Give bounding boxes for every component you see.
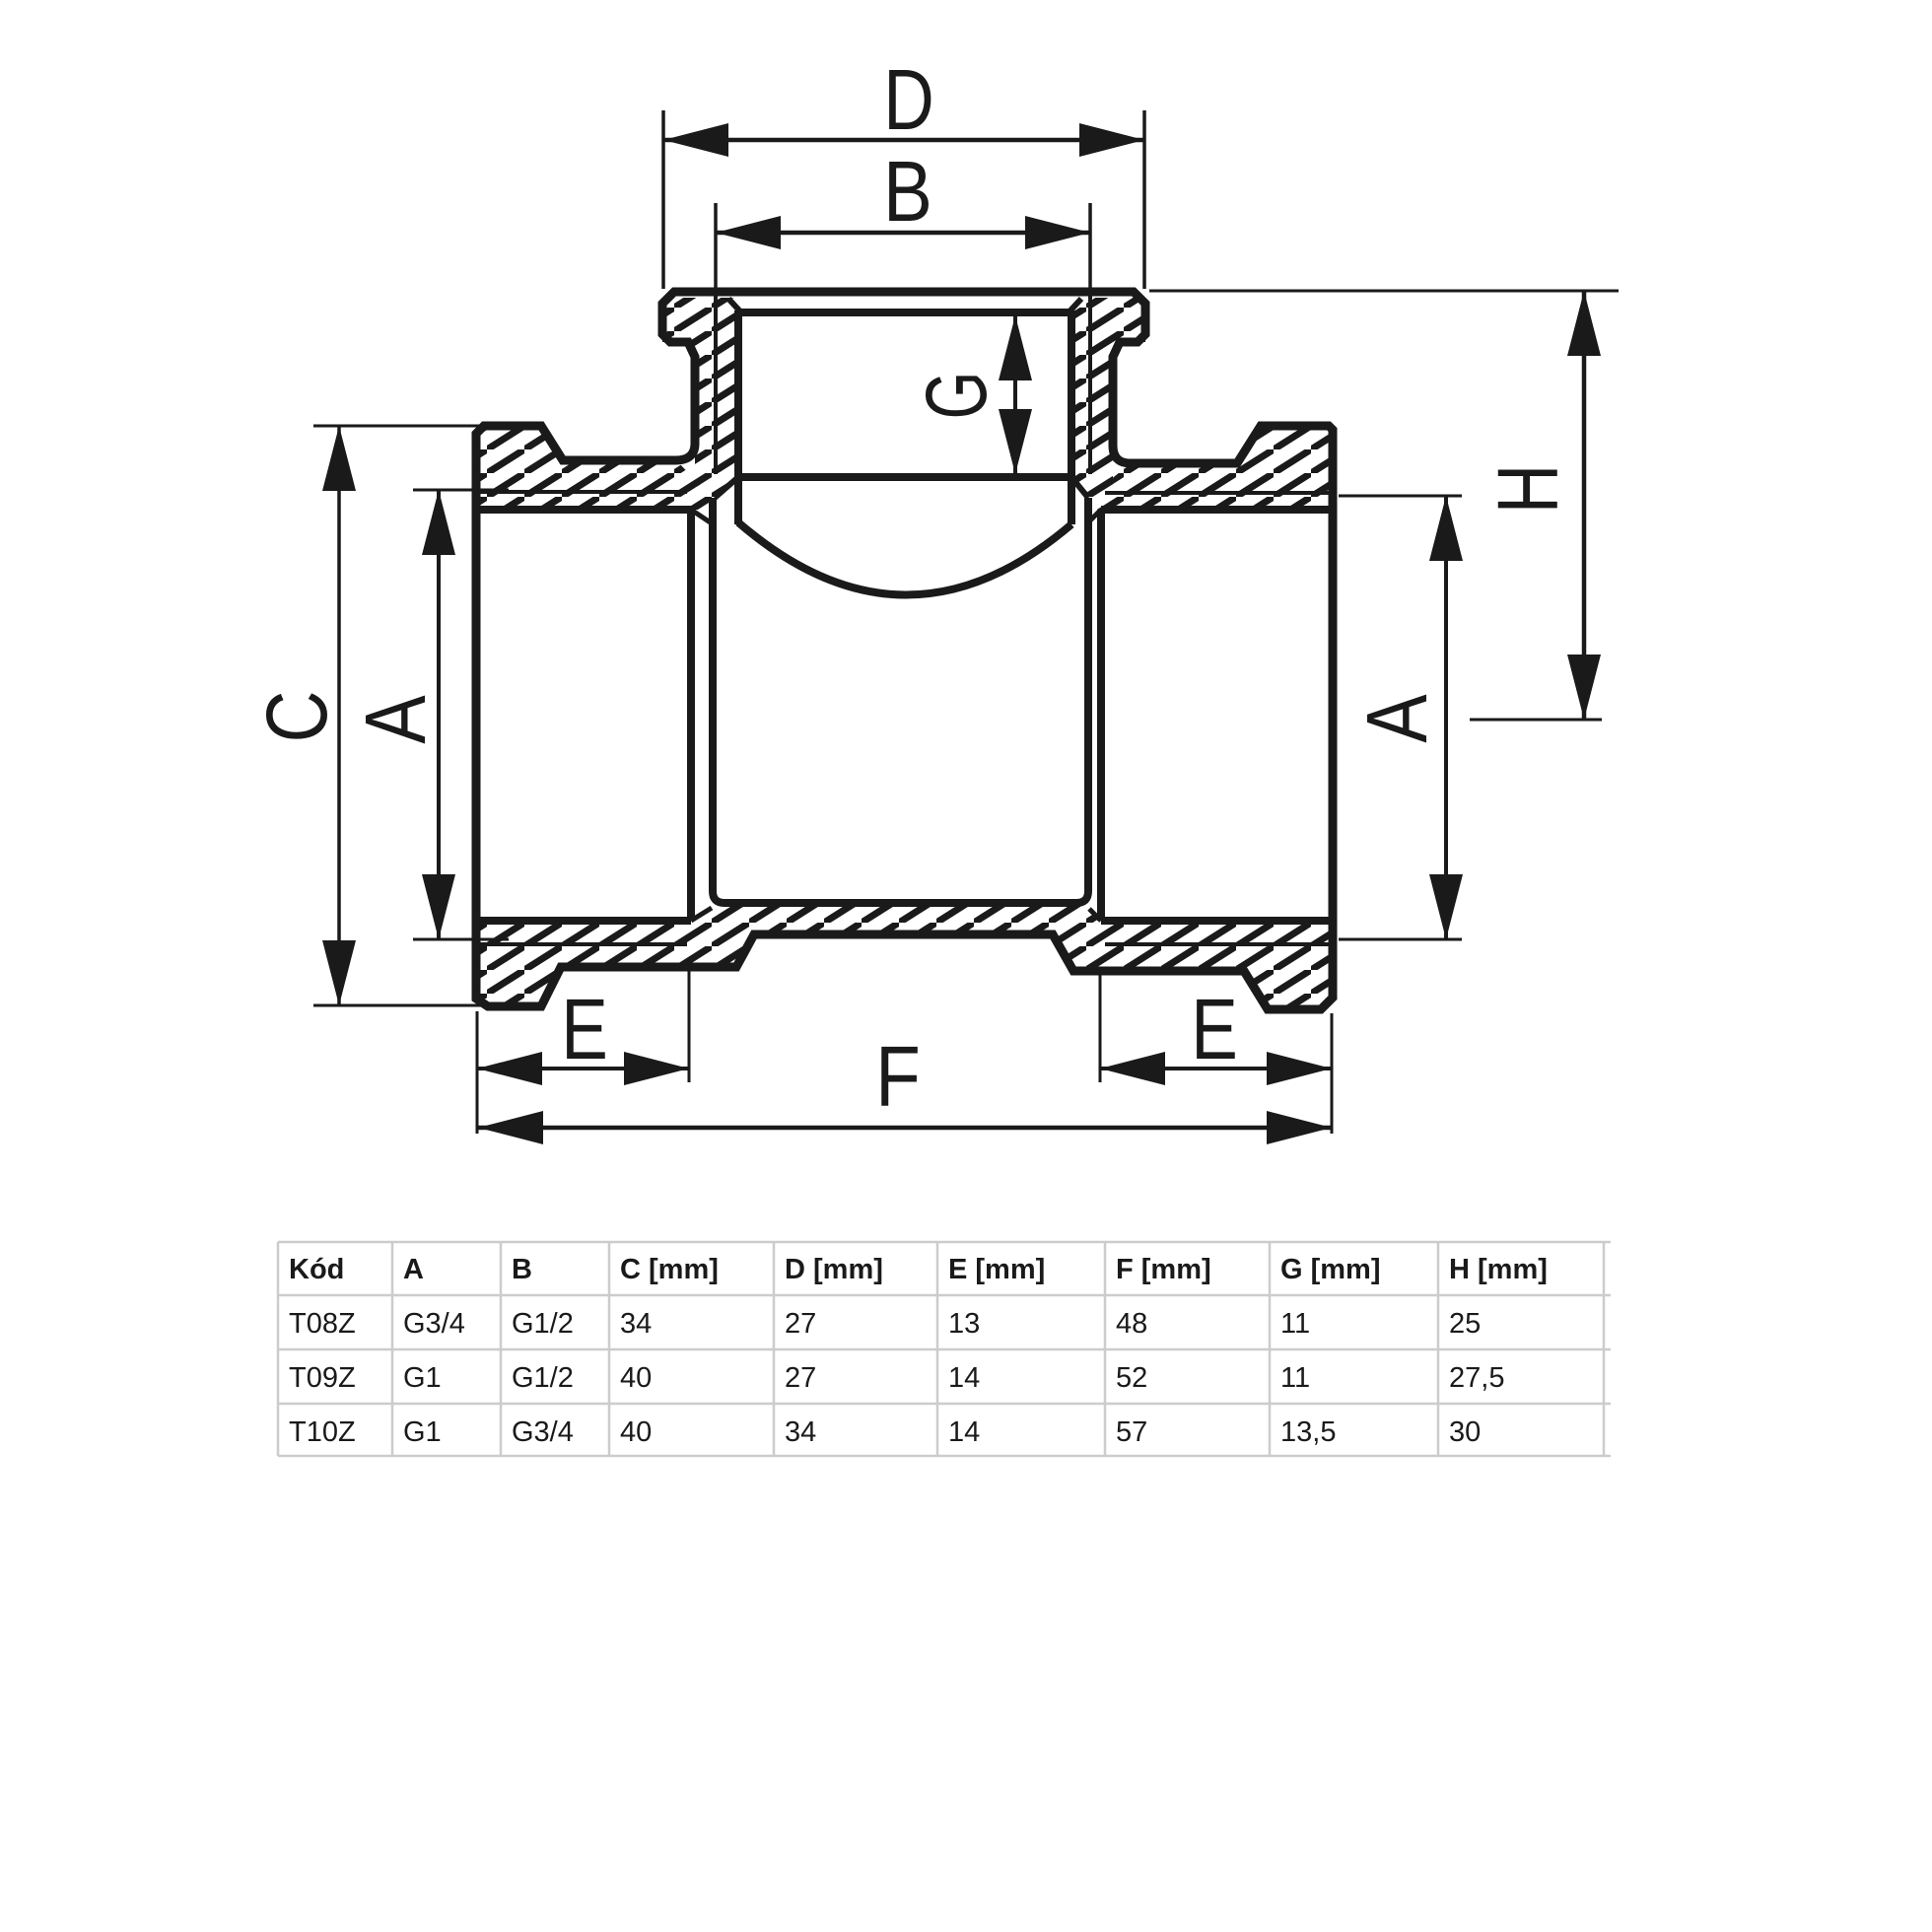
svg-text:G3/4: G3/4	[403, 1308, 465, 1340]
svg-text:14: 14	[948, 1416, 980, 1448]
svg-text:B: B	[883, 145, 932, 241]
svg-text:11: 11	[1280, 1308, 1310, 1340]
svg-text:14: 14	[948, 1362, 980, 1394]
svg-text:H [mm]: H [mm]	[1449, 1254, 1548, 1285]
svg-text:52: 52	[1116, 1362, 1147, 1394]
svg-text:13: 13	[948, 1308, 980, 1340]
svg-text:T08Z: T08Z	[289, 1308, 356, 1340]
svg-text:Kód: Kód	[289, 1254, 344, 1285]
svg-text:27: 27	[785, 1362, 816, 1394]
svg-text:34: 34	[785, 1416, 816, 1448]
svg-text:A: A	[1349, 694, 1445, 742]
svg-text:G1/2: G1/2	[512, 1362, 574, 1394]
svg-text:A: A	[403, 1254, 424, 1285]
svg-text:D [mm]: D [mm]	[785, 1254, 883, 1285]
svg-text:C: C	[249, 691, 345, 743]
svg-text:D: D	[883, 51, 934, 147]
svg-text:34: 34	[620, 1308, 652, 1340]
svg-text:G1: G1	[403, 1416, 442, 1448]
svg-text:F [mm]: F [mm]	[1116, 1254, 1211, 1285]
svg-text:H: H	[1481, 464, 1576, 514]
svg-text:E: E	[1191, 981, 1238, 1076]
svg-text:11: 11	[1280, 1362, 1310, 1394]
svg-text:48: 48	[1116, 1308, 1147, 1340]
svg-text:T09Z: T09Z	[289, 1362, 356, 1394]
svg-text:C [mm]: C [mm]	[620, 1254, 719, 1285]
svg-text:40: 40	[620, 1362, 652, 1394]
svg-text:E [mm]: E [mm]	[948, 1254, 1045, 1285]
svg-text:57: 57	[1116, 1416, 1147, 1448]
svg-text:40: 40	[620, 1416, 652, 1448]
svg-text:B: B	[512, 1254, 532, 1285]
svg-text:G [mm]: G [mm]	[1280, 1254, 1381, 1285]
svg-text:G1/2: G1/2	[512, 1308, 574, 1340]
svg-text:A: A	[348, 695, 444, 743]
svg-text:T10Z: T10Z	[289, 1416, 356, 1448]
svg-text:F: F	[875, 1030, 921, 1126]
svg-text:G3/4: G3/4	[512, 1416, 574, 1448]
svg-text:27,5: 27,5	[1449, 1362, 1504, 1394]
svg-text:25: 25	[1449, 1308, 1481, 1340]
svg-text:E: E	[561, 981, 608, 1076]
svg-text:27: 27	[785, 1308, 816, 1340]
svg-text:30: 30	[1449, 1416, 1481, 1448]
svg-text:13,5: 13,5	[1280, 1416, 1336, 1448]
svg-text:G: G	[909, 372, 1005, 420]
svg-text:G1: G1	[403, 1362, 442, 1394]
